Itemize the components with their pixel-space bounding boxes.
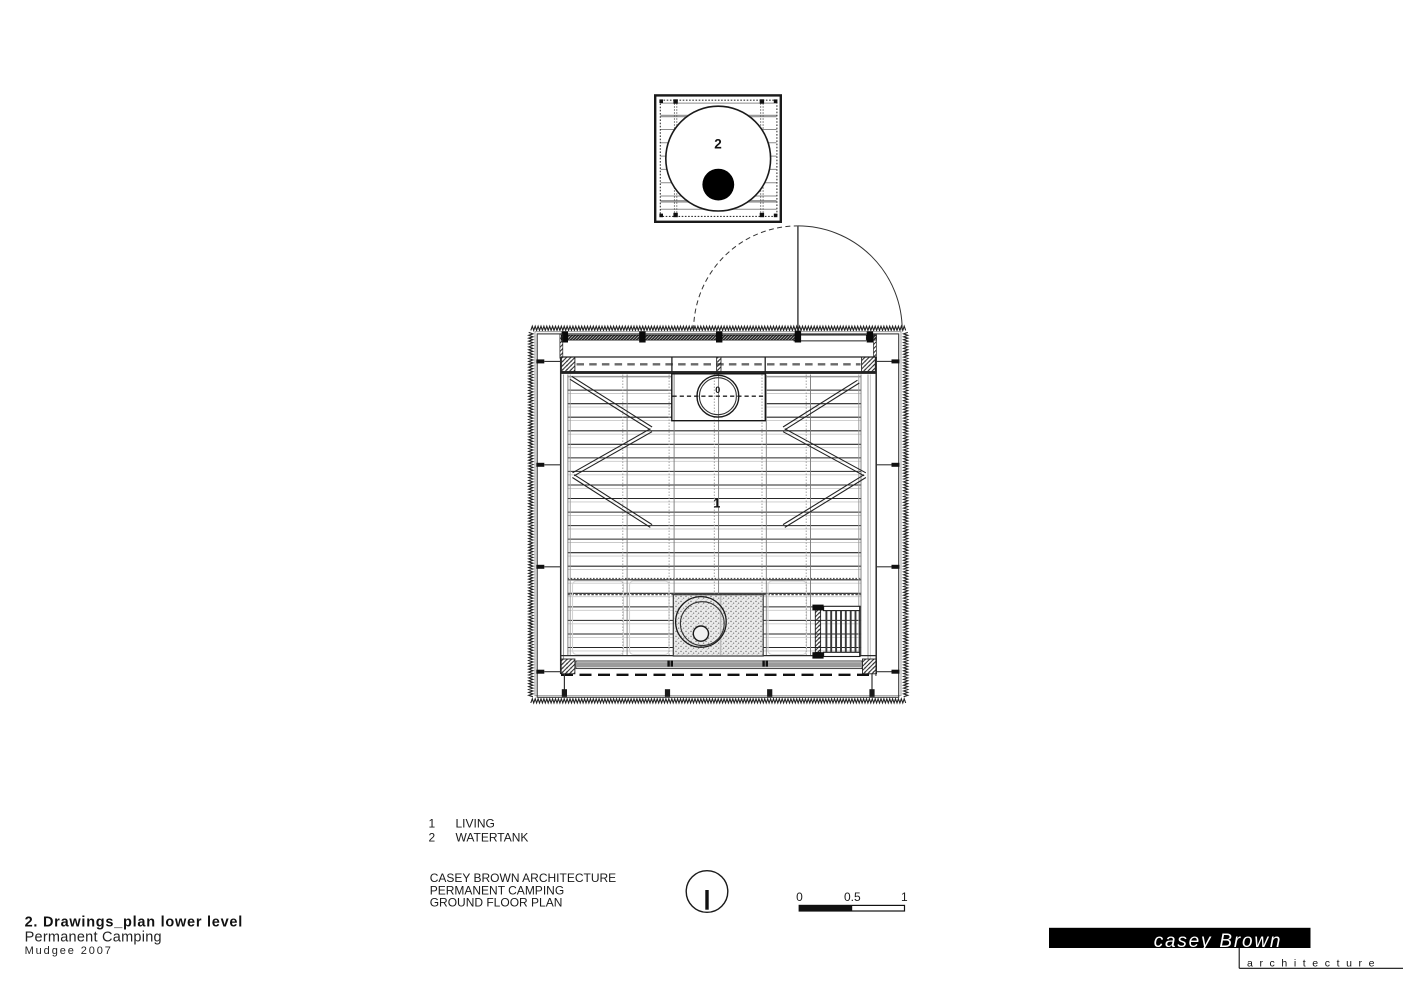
svg-text:0.5: 0.5 xyxy=(844,890,861,904)
svg-text:2: 2 xyxy=(714,137,722,152)
svg-text:1: 1 xyxy=(713,497,720,511)
svg-text:2. Drawings_plan lower level: 2. Drawings_plan lower level xyxy=(25,915,243,931)
svg-text:LIVING: LIVING xyxy=(456,817,495,831)
svg-text:1: 1 xyxy=(429,817,436,831)
svg-text:casey Brown: casey Brown xyxy=(1154,931,1283,952)
svg-text:0: 0 xyxy=(715,385,720,395)
svg-text:Permanent Camping: Permanent Camping xyxy=(25,930,162,946)
svg-text:WATERTANK: WATERTANK xyxy=(456,831,529,845)
svg-text:architecture: architecture xyxy=(1247,957,1381,969)
svg-text:Mudgee 2007: Mudgee 2007 xyxy=(25,945,113,957)
svg-text:1: 1 xyxy=(901,890,908,904)
svg-text:2: 2 xyxy=(429,831,436,845)
svg-text:0: 0 xyxy=(796,890,803,904)
svg-text:GROUND FLOOR PLAN: GROUND FLOOR PLAN xyxy=(430,896,563,910)
